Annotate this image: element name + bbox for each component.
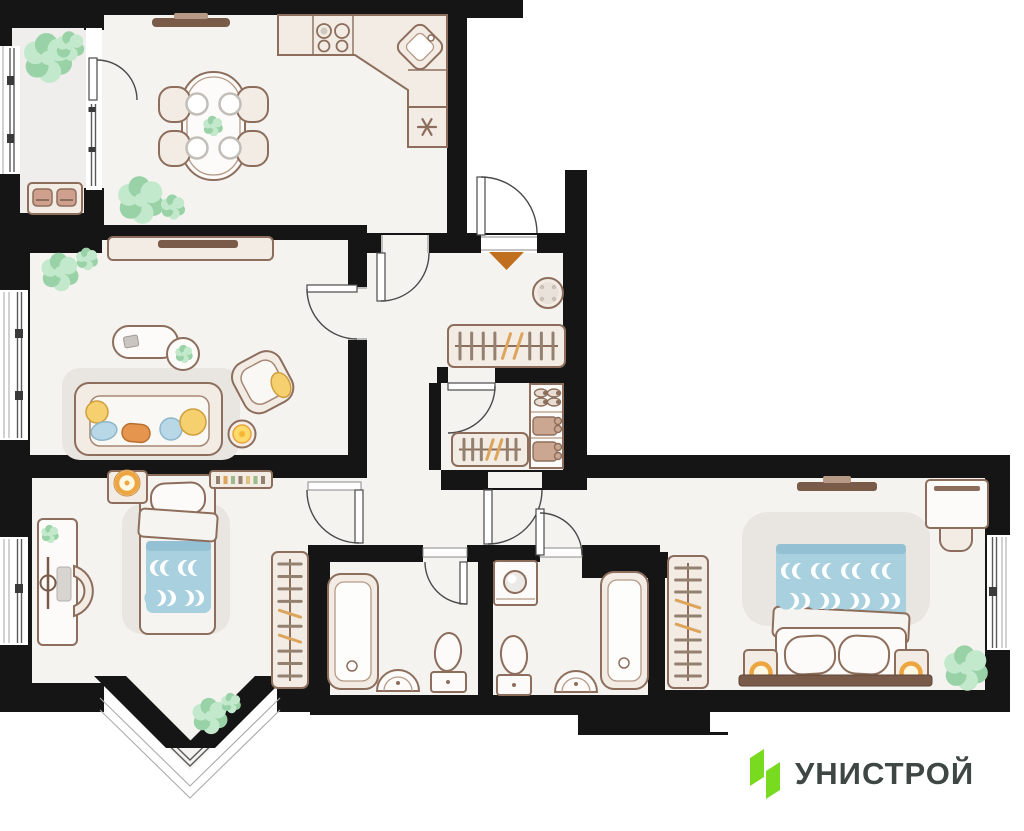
door-leaf (355, 490, 363, 543)
sofa-pillow-yellow (180, 409, 206, 435)
wall-segment (648, 552, 665, 697)
window-handle (89, 147, 96, 152)
moon-mask (192, 559, 209, 576)
bathtub-drain (619, 658, 629, 668)
plate (187, 94, 208, 115)
floor-plan-page: УНИСТРОЙ (0, 0, 1024, 831)
sink-faucet (428, 35, 434, 41)
wall-segment (563, 253, 587, 490)
wall-segment (478, 545, 493, 715)
bathtub-drain (347, 661, 357, 671)
burner-plate (321, 28, 328, 35)
wall-segment (84, 0, 104, 30)
kitchen-tv (152, 18, 230, 27)
wall-segment (0, 0, 88, 28)
master-desk-drawer (934, 486, 980, 491)
moon-mask (144, 589, 161, 606)
stool-button (552, 285, 556, 289)
door-frame (308, 482, 361, 490)
plant-center (960, 662, 973, 675)
hall-coat-rack (448, 325, 565, 367)
door-frame (423, 548, 467, 557)
bed-blanket-band (146, 541, 211, 551)
door-leaf (484, 490, 492, 544)
wall-segment (495, 367, 563, 383)
window-handle (7, 76, 14, 85)
plant-center (134, 193, 147, 206)
bedroom-window (0, 537, 28, 645)
master-pillow (838, 635, 890, 676)
nightstand-lamp-bulb (125, 481, 130, 486)
master-tv-bracket (823, 476, 851, 483)
door-leaf (307, 285, 357, 292)
plant-center (181, 351, 186, 356)
stool-button (540, 285, 544, 289)
master-window (987, 535, 1010, 650)
window-handle (15, 391, 23, 400)
closet-corridor-opening (488, 472, 542, 488)
door-leaf (477, 177, 485, 235)
wall-segment (429, 383, 441, 470)
door-leaf (448, 383, 495, 390)
closet-furniture (530, 384, 563, 468)
plate (220, 94, 241, 115)
moon-mask (777, 592, 794, 609)
sofa-pillow-blue (160, 418, 182, 440)
plate (220, 138, 241, 159)
door-frame (540, 548, 582, 557)
window-handle (15, 329, 23, 338)
plant-center (210, 123, 216, 129)
plant-center (205, 711, 215, 721)
wall-segment (310, 545, 423, 562)
bench-seat (57, 189, 76, 206)
plant-center (84, 256, 90, 262)
master-wardrobe-rack (668, 556, 708, 688)
living-door-opening (348, 287, 367, 340)
brand-name: УНИСТРОЙ (795, 756, 974, 792)
closet-hanger-rack (452, 433, 528, 466)
wall-segment (565, 455, 1010, 478)
washer-drum-glass (508, 575, 517, 584)
door-leaf (377, 253, 385, 301)
bench-seat (33, 189, 52, 206)
master-headboard (739, 675, 932, 686)
brand-logo: УНИСТРОЙ (748, 742, 1010, 806)
sofa-pillow-yellow (86, 401, 108, 423)
bedroom-wardrobe-rack (272, 552, 308, 688)
master-pillow (784, 635, 836, 676)
sink-faucet (574, 682, 578, 686)
plant-center (66, 42, 74, 50)
wall-segment (0, 683, 104, 712)
wall-step-gap (710, 712, 758, 732)
door-leaf (536, 509, 544, 555)
room-hallway-column (361, 247, 437, 478)
living-tv (158, 240, 238, 248)
plant-center (47, 531, 52, 536)
entrance-door (477, 177, 537, 235)
window-handle (989, 587, 997, 596)
window-handle (15, 584, 23, 593)
window-handle (89, 107, 96, 112)
logo-mark-bar (750, 749, 764, 786)
coffee-table-book (123, 335, 139, 348)
plate (187, 138, 208, 159)
bed-fold (138, 508, 218, 541)
wall-segment (467, 545, 540, 562)
toilet-button (512, 683, 516, 687)
hall-stool-top (537, 282, 559, 304)
unistroy-logo-mark (748, 746, 782, 802)
floor-plan-drawing (0, 0, 1024, 831)
kitchen-tv-bracket (174, 13, 208, 19)
moon-mask (886, 562, 903, 579)
stool-button (552, 297, 556, 301)
wall-segment (447, 0, 467, 253)
master-tv (797, 482, 877, 491)
plant-center (228, 700, 234, 706)
door-swing-arc (481, 177, 537, 233)
kitchen-door-opening (381, 235, 429, 253)
wall-segment (308, 545, 330, 690)
sofa-pillow-orange (121, 423, 150, 443)
stool-button (540, 297, 544, 301)
door-leaf (89, 58, 97, 100)
wall-segment (437, 367, 448, 383)
window-handle (7, 134, 14, 143)
toilet-button (446, 680, 450, 684)
logo-mark-bar (766, 762, 780, 799)
wall-segment (0, 0, 12, 50)
laptop (57, 567, 71, 601)
balcony-left-window (0, 46, 20, 174)
balcony-furniture (28, 183, 82, 214)
door-leaf (460, 562, 467, 604)
floor-lamp-bulb (239, 431, 245, 437)
bay-window (94, 676, 287, 798)
sink-faucet (396, 681, 400, 685)
wall-segment (648, 690, 1010, 712)
wall-segment (348, 253, 367, 462)
living-window (0, 290, 28, 440)
plant-center (41, 51, 55, 65)
plant-center (55, 267, 66, 278)
master-blanket-band (776, 544, 906, 554)
plant-center (169, 203, 176, 210)
